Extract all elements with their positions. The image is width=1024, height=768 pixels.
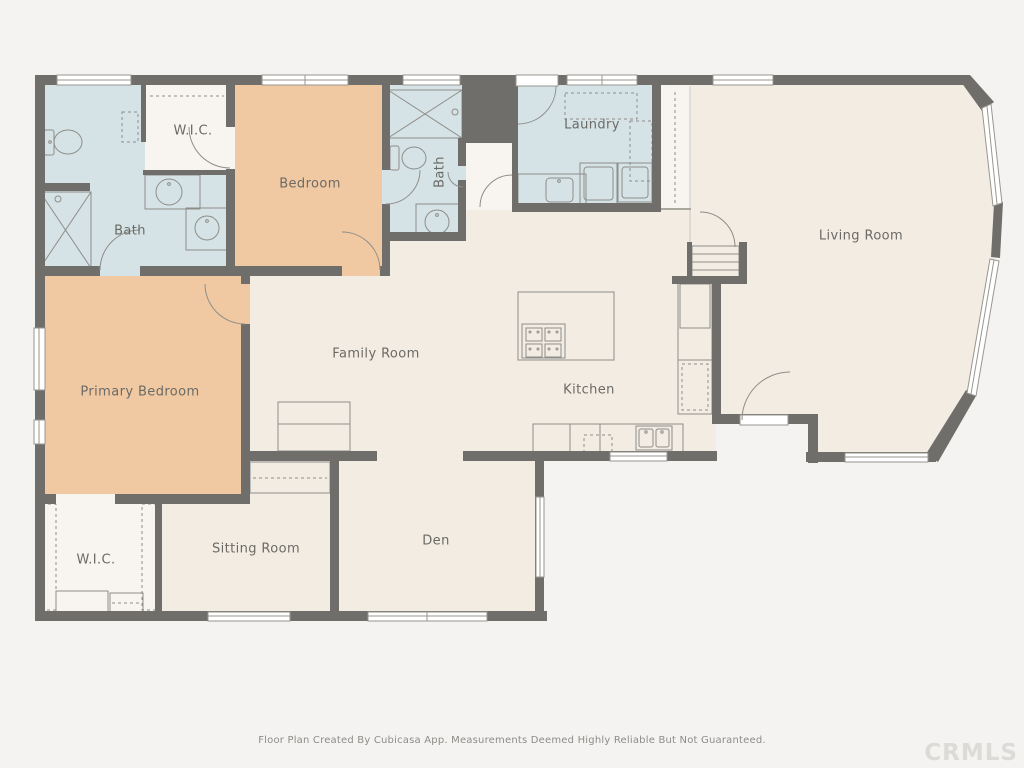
window (34, 328, 45, 390)
room-label-kitchen: Kitchen (563, 383, 615, 398)
door-opening (226, 127, 235, 169)
window (57, 75, 131, 85)
wall (226, 75, 235, 276)
wall (652, 75, 661, 212)
wall (672, 276, 747, 284)
room-label-family-room: Family Room (332, 347, 419, 362)
wall (386, 232, 466, 241)
window (368, 612, 487, 621)
wall (458, 138, 466, 241)
window (262, 75, 348, 85)
window (403, 75, 460, 85)
window (845, 453, 928, 462)
door-opening (56, 494, 115, 504)
wic-1-partition (143, 170, 232, 175)
window (34, 420, 45, 444)
hall-floor (464, 142, 514, 210)
wall (512, 142, 518, 212)
room-label-wic-1: W.I.C. (173, 124, 212, 139)
bath-2-floor (386, 80, 462, 240)
wall (35, 266, 388, 276)
wic-1-partition (141, 80, 146, 142)
wall (518, 203, 658, 212)
room-label-bath-1: Bath (114, 224, 146, 239)
wall (35, 183, 90, 191)
room-label-den: Den (422, 534, 449, 549)
door-opening (458, 166, 466, 180)
disclaimer-text: Floor Plan Created By Cubicasa App. Meas… (0, 735, 1024, 746)
room-label-bath-2: Bath (433, 156, 448, 188)
room-label-living-room: Living Room (819, 229, 903, 244)
wall (330, 451, 339, 621)
door-opening (382, 170, 390, 204)
exterior-door-slab (516, 75, 558, 86)
window (536, 497, 544, 577)
window (567, 75, 637, 85)
window (610, 452, 667, 461)
room-label-wic-2: W.I.C. (76, 553, 115, 568)
wall (245, 451, 377, 461)
room-label-sitting-room: Sitting Room (212, 542, 300, 557)
door-opening (342, 266, 380, 276)
door-opening (241, 284, 250, 324)
window (208, 612, 290, 621)
wall (155, 502, 162, 612)
floor-plan-page: Bath W.I.C. Bedroom Bath Laundry Living … (0, 0, 1024, 768)
wall (463, 451, 717, 461)
door-slab (740, 415, 788, 425)
wall (382, 75, 390, 240)
room-label-primary-bedroom: Primary Bedroom (80, 385, 199, 400)
room-label-laundry: Laundry (564, 118, 620, 133)
window (713, 75, 773, 85)
crmls-watermark: CRMLS (924, 740, 1018, 766)
structural-block (462, 75, 518, 143)
wall (712, 278, 721, 424)
room-label-bedroom: Bedroom (279, 177, 341, 192)
door-opening (100, 266, 140, 276)
